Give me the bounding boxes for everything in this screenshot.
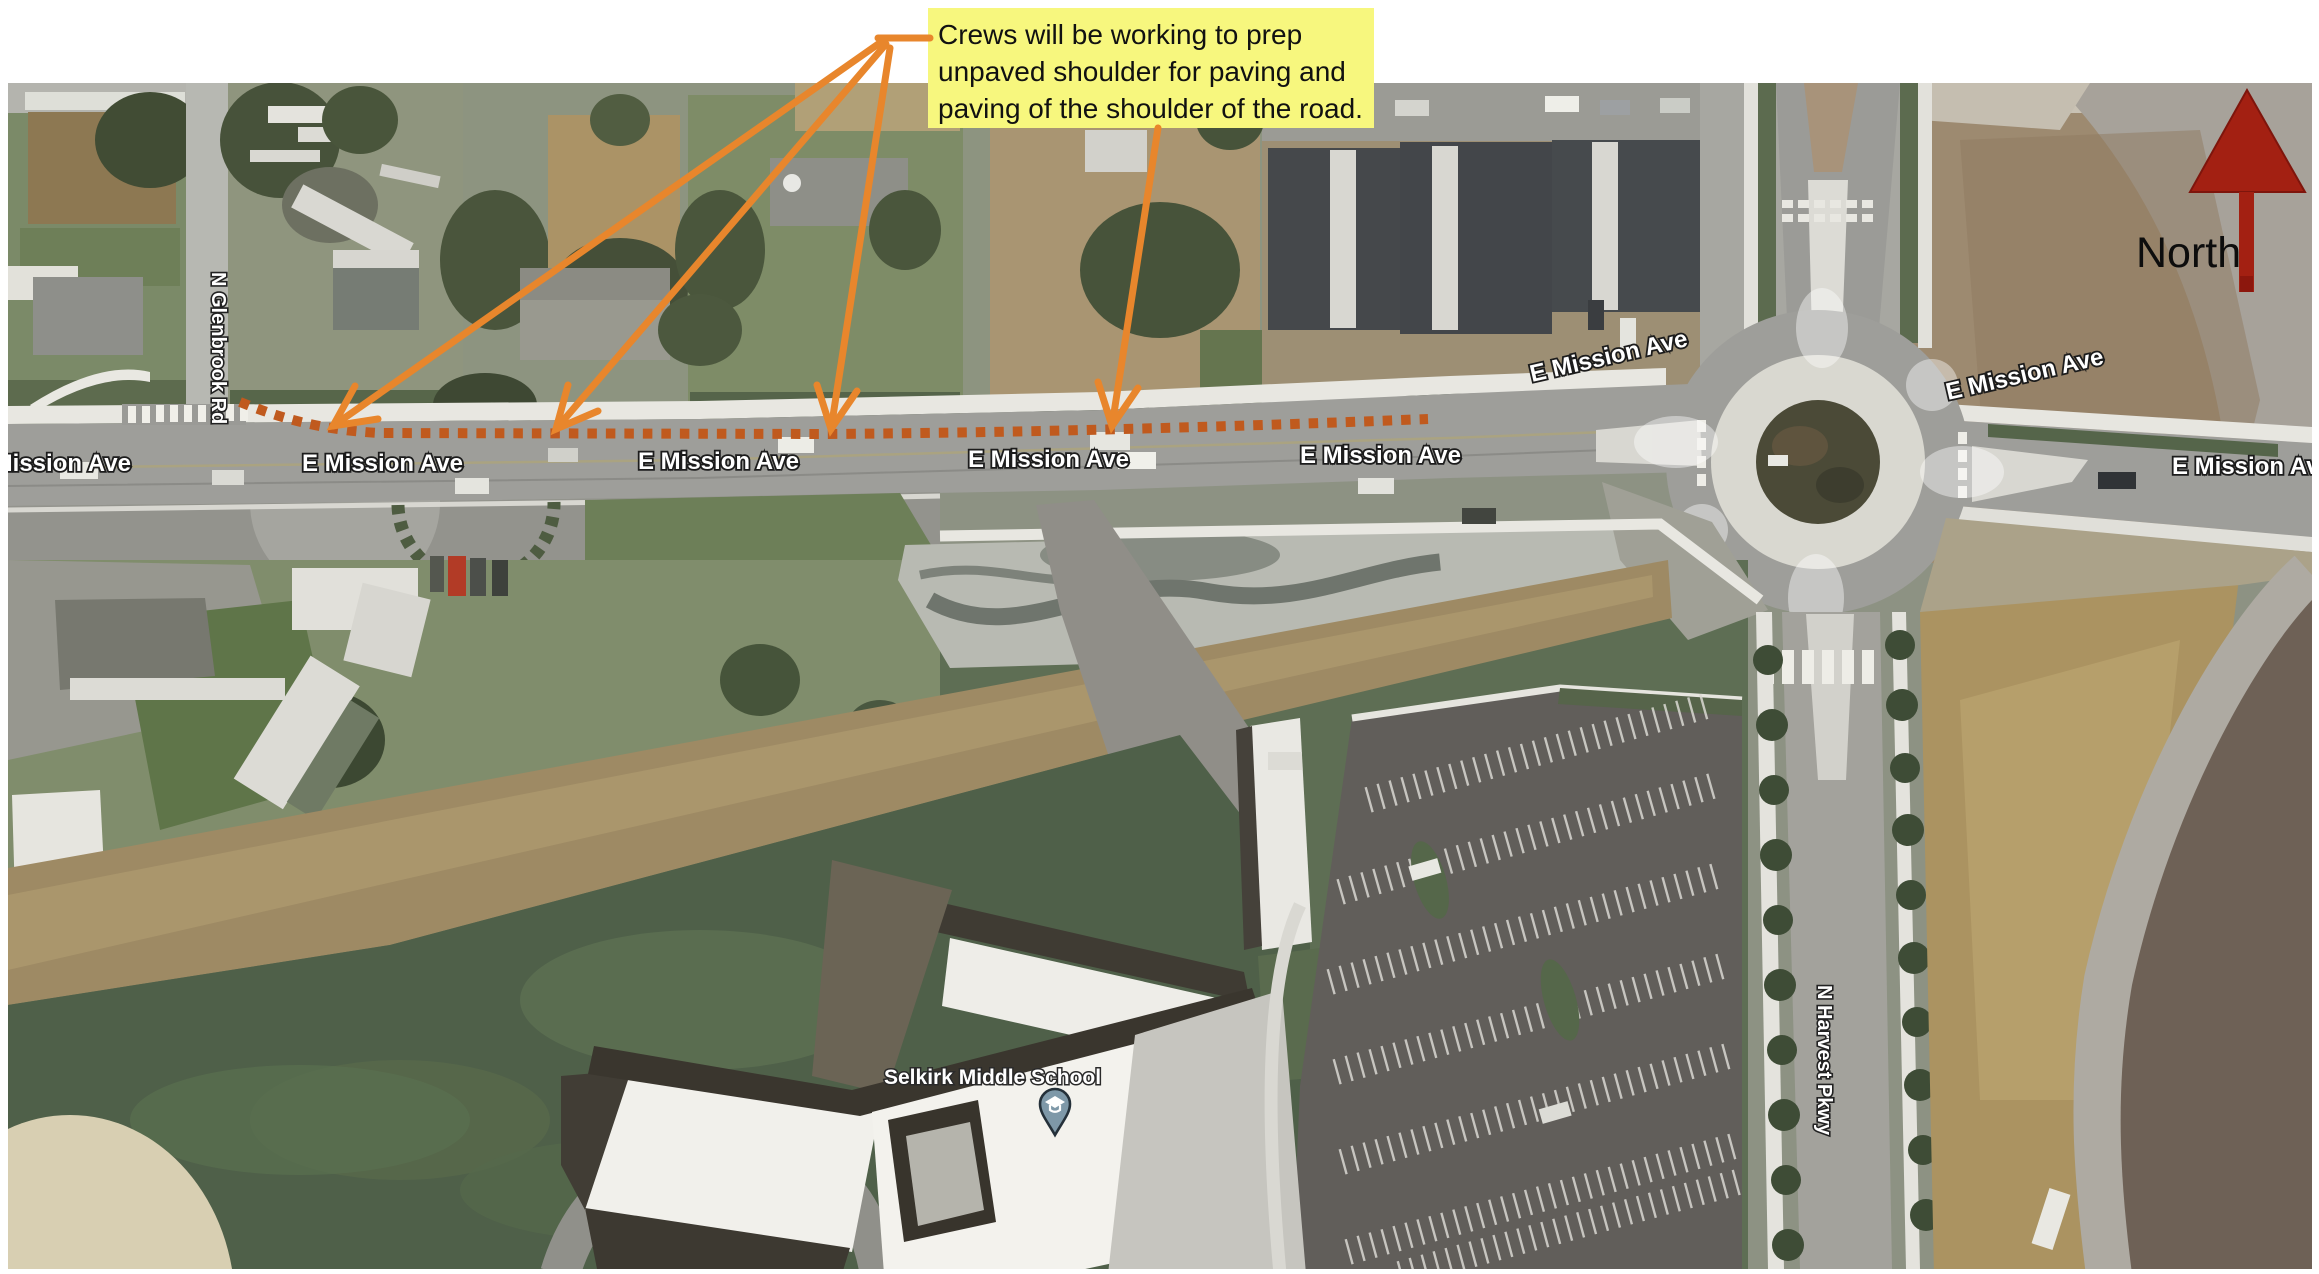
svg-text:Selkirk Middle School: Selkirk Middle School [884,1066,1101,1089]
svg-text:E Mission Ave: E Mission Ave [1300,442,1461,469]
svg-text:E Mission Ave: E Mission Ave [302,450,463,477]
svg-text:N Glenbrook Rd: N Glenbrook Rd [207,272,229,424]
svg-text:paving of the shoulder of the: paving of the shoulder of the road. [938,93,1363,124]
svg-text:Crews will be working to prep: Crews will be working to prep [938,19,1302,50]
svg-text:North: North [2136,229,2241,277]
svg-text:E Mission Ave: E Mission Ave [968,446,1129,473]
svg-text:E Mission Ave: E Mission Ave [0,450,131,477]
svg-text:E Mission Ave: E Mission Ave [638,448,799,475]
svg-text:E Mission Ave: E Mission Ave [2172,453,2319,480]
svg-text:unpaved shoulder for paving an: unpaved shoulder for paving and [938,56,1346,87]
svg-text:N Harvest Pkwy: N Harvest Pkwy [1813,985,1835,1136]
